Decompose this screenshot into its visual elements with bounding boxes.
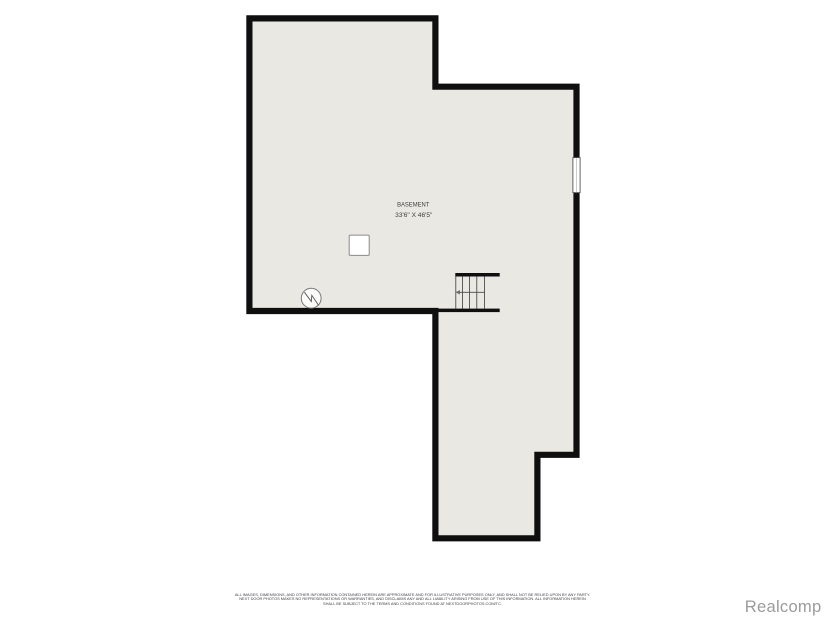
svg-text:BASEMENT: BASEMENT [397, 202, 429, 209]
svg-text:33'6" X 46'5": 33'6" X 46'5" [395, 212, 432, 219]
